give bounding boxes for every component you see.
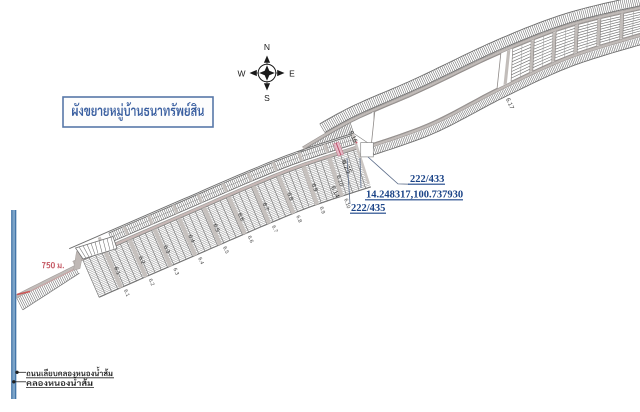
- svg-text:6.1: 6.1: [122, 289, 130, 298]
- svg-text:6.17: 6.17: [504, 97, 515, 111]
- svg-text:6.7: 6.7: [270, 225, 278, 234]
- svg-text:6.4: 6.4: [196, 257, 204, 266]
- svg-text:6.2: 6.2: [147, 278, 155, 287]
- svg-text:6.8: 6.8: [294, 215, 302, 224]
- svg-text:W: W: [237, 69, 245, 79]
- svg-text:S: S: [264, 93, 270, 103]
- svg-text:6.9: 6.9: [318, 206, 326, 215]
- svg-text:6.3: 6.3: [171, 267, 179, 276]
- svg-text:222/435: 222/435: [351, 203, 385, 214]
- svg-text:222/433: 222/433: [410, 174, 444, 185]
- svg-text:E: E: [289, 69, 295, 79]
- svg-text:N: N: [264, 42, 270, 52]
- svg-text:6.5: 6.5: [221, 246, 229, 255]
- svg-text:6.6: 6.6: [246, 235, 254, 244]
- svg-text:14.248317,100.737930: 14.248317,100.737930: [366, 190, 463, 201]
